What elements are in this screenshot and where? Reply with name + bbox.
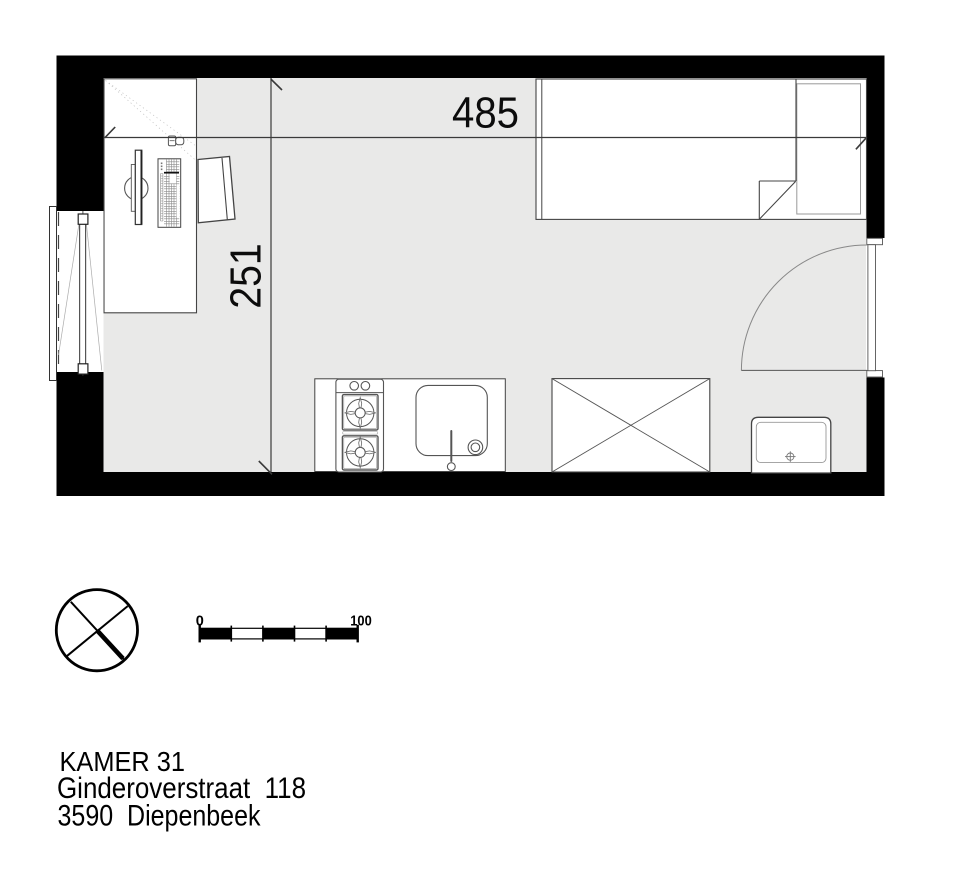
svg-text:3590 Diepenbeek: 3590 Diepenbeek — [58, 799, 261, 832]
svg-text:0: 0 — [196, 613, 204, 629]
svg-text:251: 251 — [222, 243, 271, 309]
svg-text:485: 485 — [452, 88, 519, 137]
svg-text:100: 100 — [350, 613, 372, 629]
